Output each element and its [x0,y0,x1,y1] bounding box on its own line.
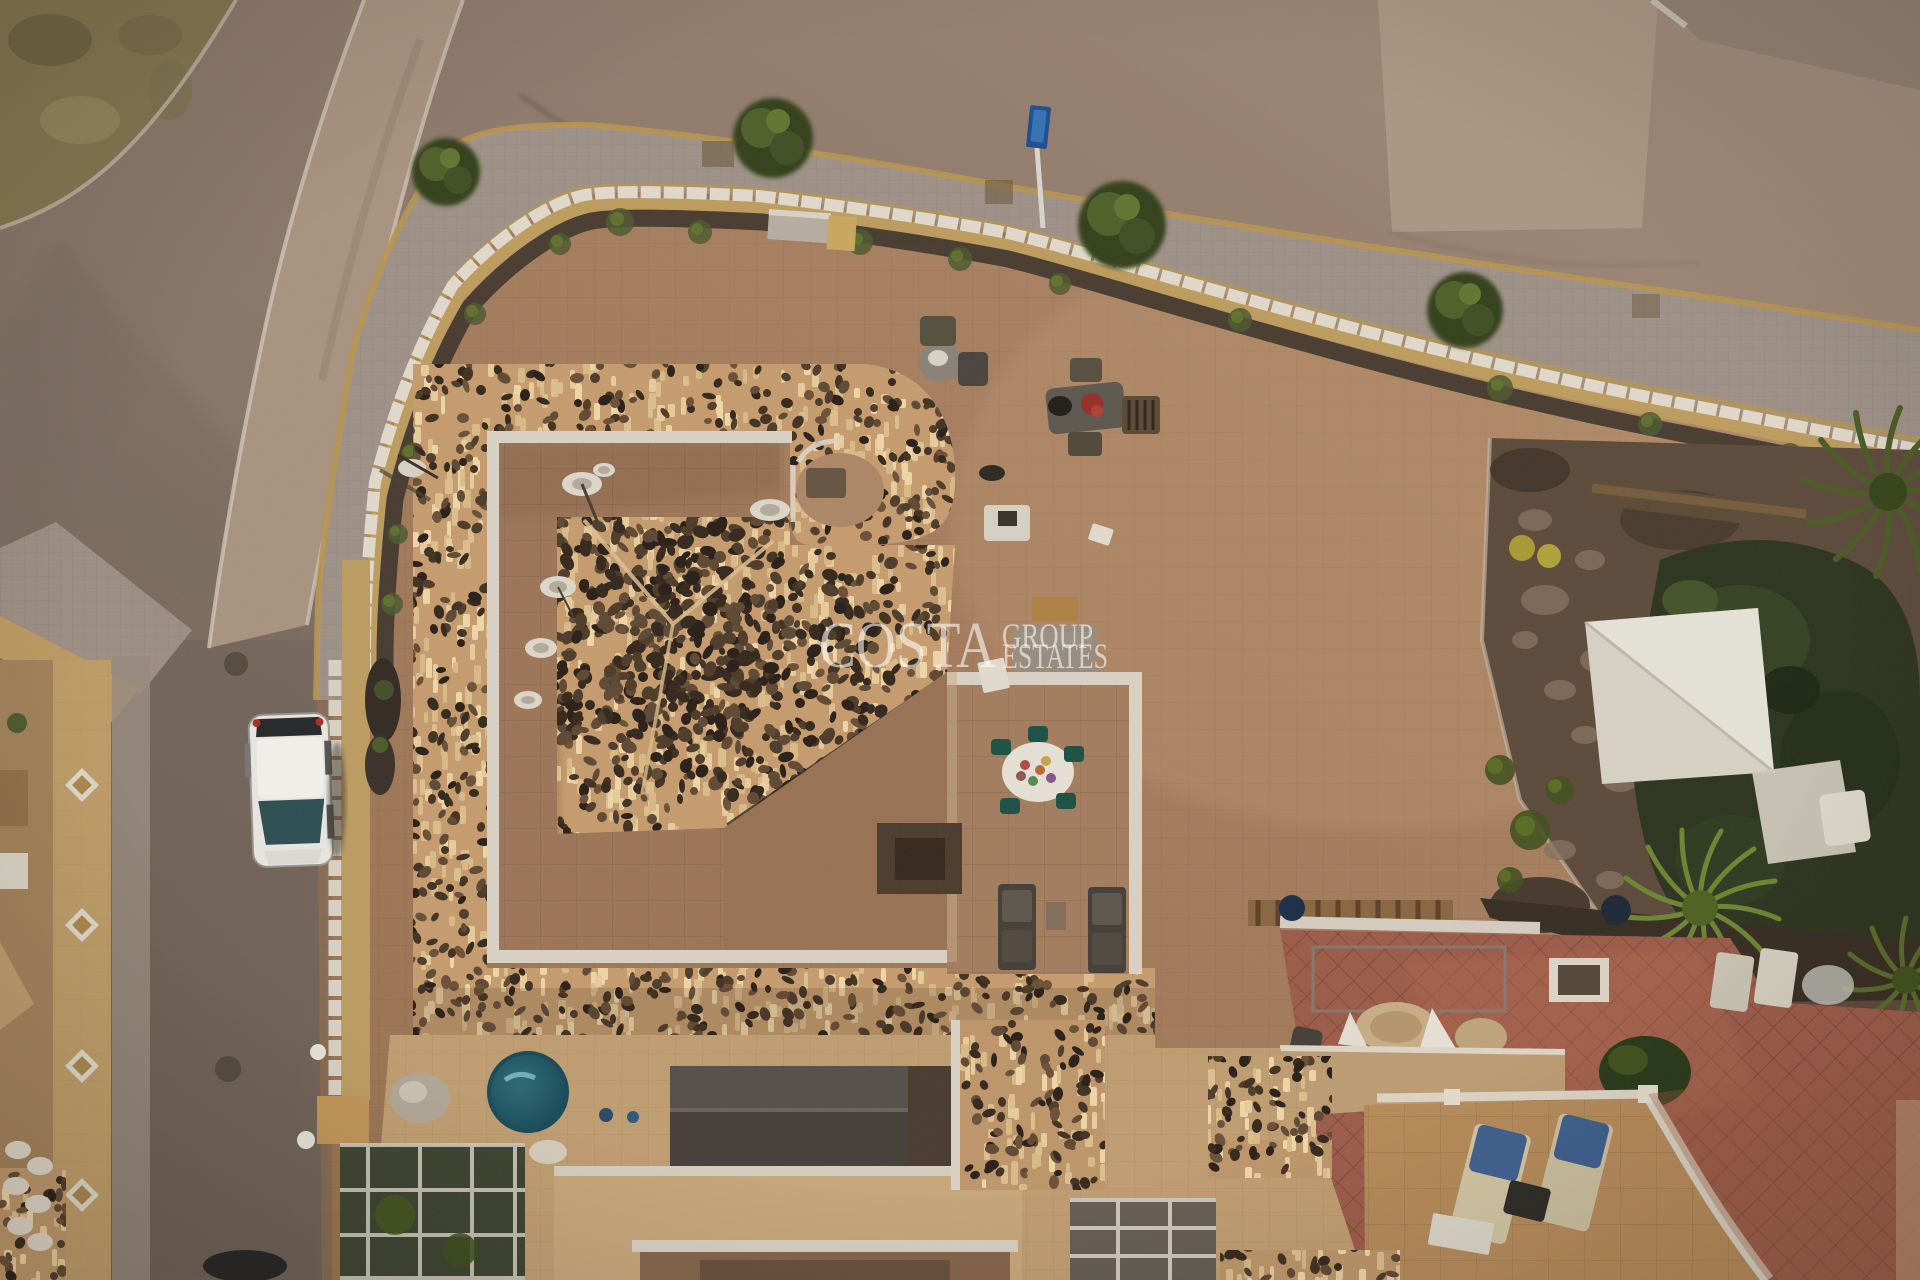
svg-text:ESTATES: ESTATES [1002,636,1108,676]
svg-text:COSTA: COSTA [819,609,996,682]
